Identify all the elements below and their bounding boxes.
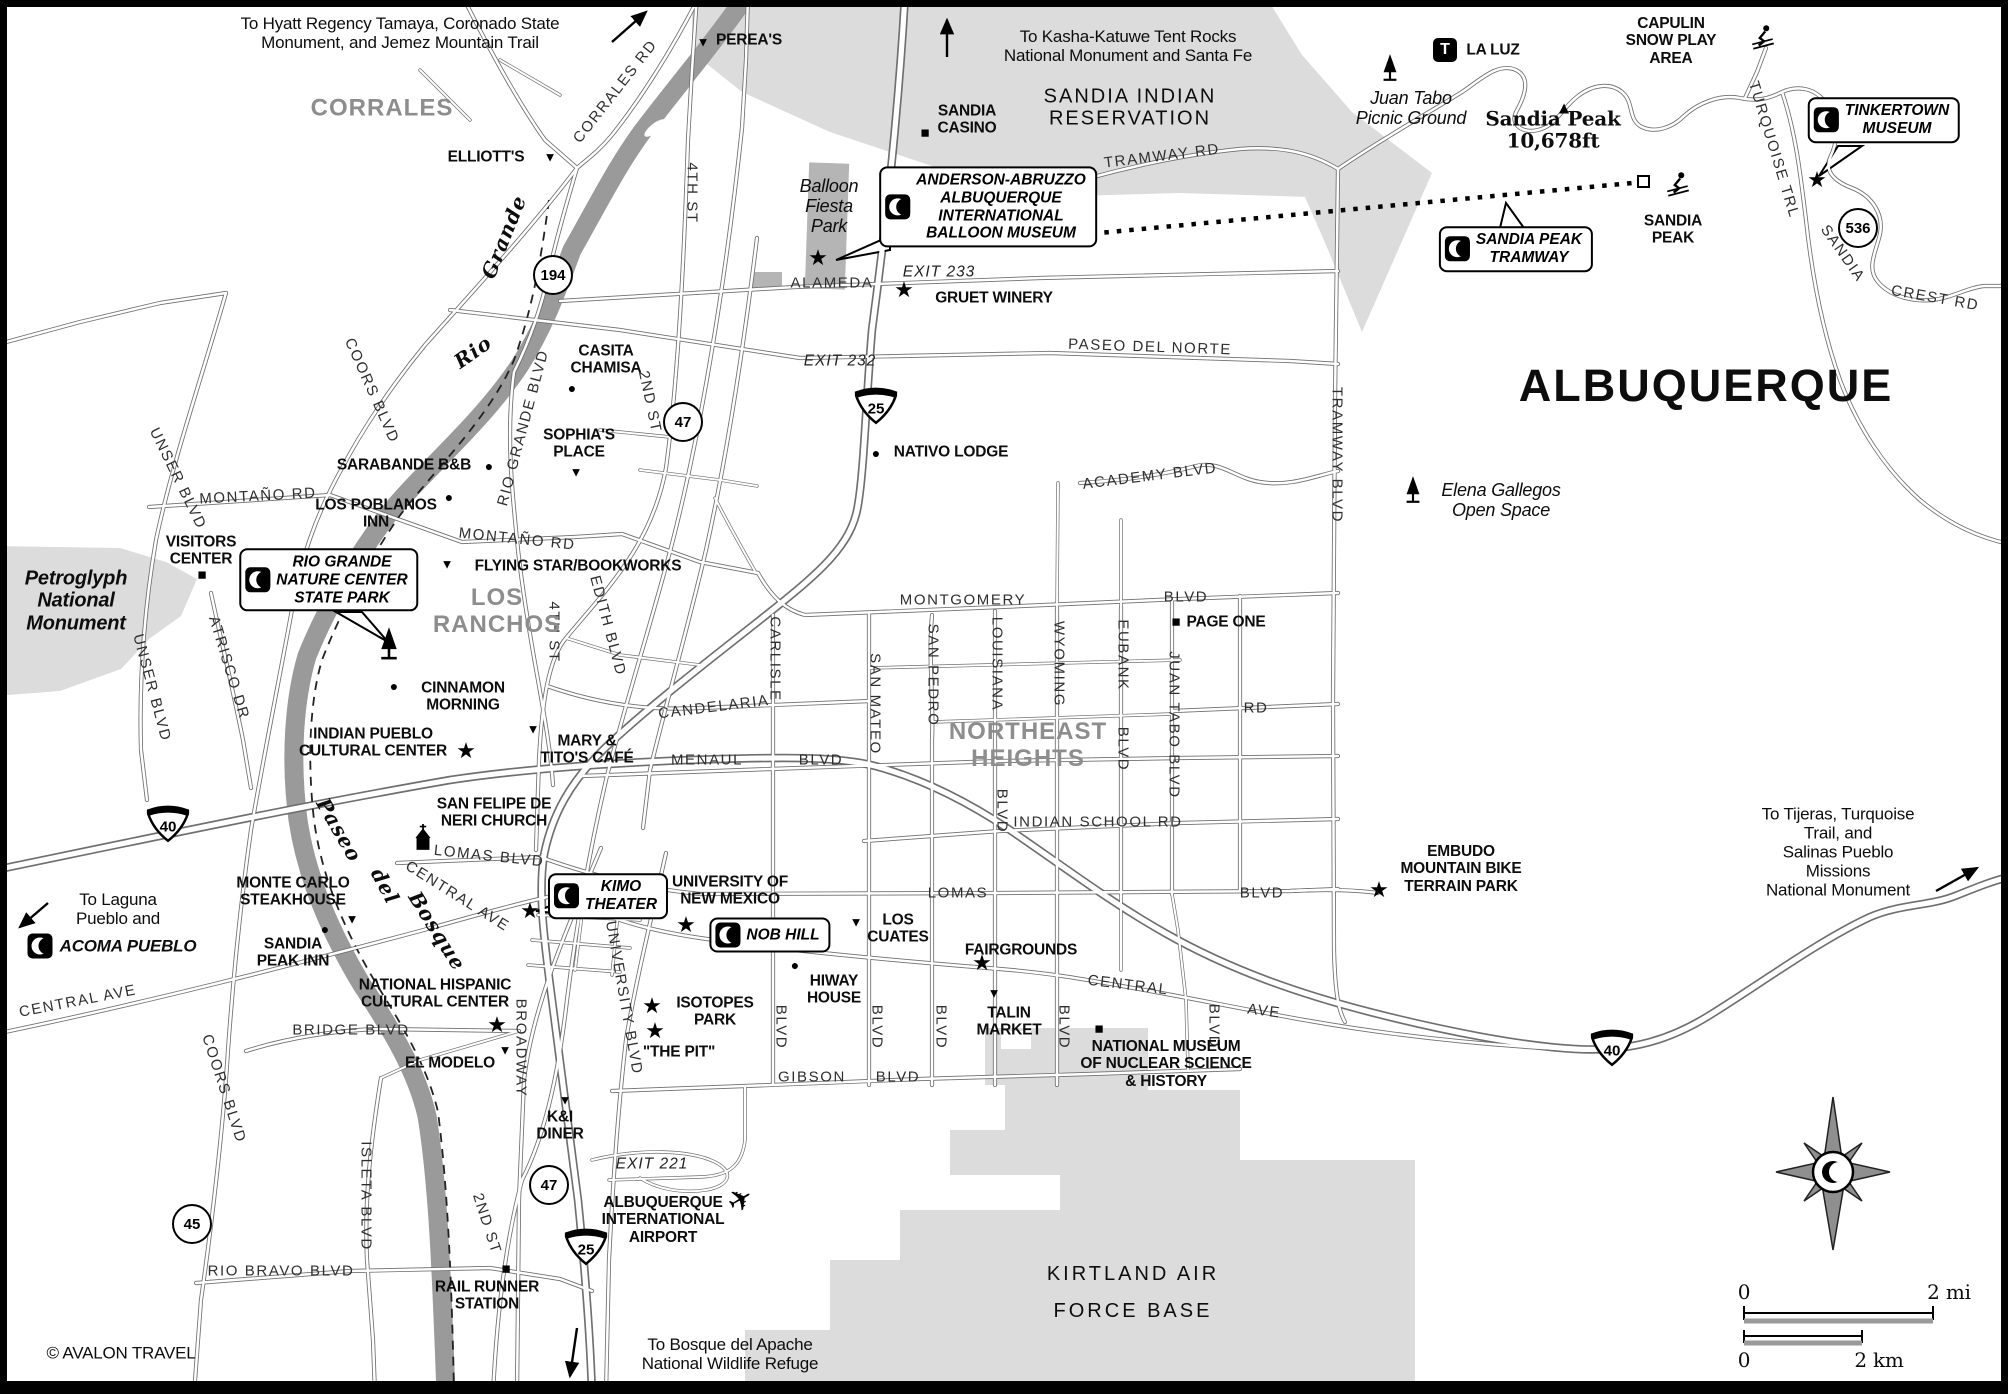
road-wyoming-blvd-s: BLVD xyxy=(1055,1005,1072,1049)
road-louisiana: LOUISIANA xyxy=(988,617,1005,711)
sight-marker-visitors-center: ■ xyxy=(197,568,206,583)
poi-ki-diner: K&I DINER xyxy=(536,1109,583,1144)
star-marker-tinkertown: ★ xyxy=(1807,169,1827,191)
lodging-marker-cinnamon: ● xyxy=(390,679,398,693)
albuquerque-map: To Hyatt Regency Tamaya, Coronado State … xyxy=(0,0,2008,1394)
moon-icon xyxy=(245,568,270,593)
scale-bars xyxy=(1744,1306,1933,1343)
callout-kimo-theater: KIMO THEATER xyxy=(548,873,668,919)
callout-text: ANDERSON-ABRUZZO ALBUQUERQUE INTERNATION… xyxy=(916,171,1086,242)
restaurant-marker-talin: ▼ xyxy=(988,987,1001,1000)
poi-casita-chamisa: CASITA CHAMISA xyxy=(571,343,642,378)
road-carlisle-blvd-s: BLVD xyxy=(772,1005,789,1049)
road-gibson-blvd: BLVD xyxy=(876,1070,920,1087)
road-tramway-blvd: TRAMWAY BLVD xyxy=(1328,387,1345,523)
city-northeast-heights: NORTHEAST HEIGHTS xyxy=(949,719,1107,773)
road-san-pedro-blvd-s: BLVD xyxy=(932,1005,949,1049)
city-los-ranchos: LOS RANCHOS xyxy=(433,585,561,639)
star-marker-unm: ★ xyxy=(676,914,696,936)
area-petroglyph: Petroglyph National Monument xyxy=(25,567,127,634)
poi-los-poblanos: LOS POBLANOS INN xyxy=(315,497,437,532)
poi-talin-market: TALIN MARKET xyxy=(976,1005,1041,1040)
callout-text: TINKERTOWN MUSEUM xyxy=(1845,102,1949,138)
svg-text:40: 40 xyxy=(1604,1042,1621,1059)
interstate-shield-40-east: 40 xyxy=(1589,1024,1635,1068)
road-gibson: GIBSON xyxy=(778,1070,846,1087)
exit-232: EXIT 232 xyxy=(804,352,877,369)
star-marker-ipcc: ★ xyxy=(456,740,476,762)
road-carlisle: CARLISLE xyxy=(766,616,783,701)
poi-la-luz: LA LUZ xyxy=(1466,41,1519,58)
picnic-tree-icon-juan-tabo xyxy=(1379,53,1401,83)
moon-icon xyxy=(554,884,579,909)
trailhead-icon-la-luz: T xyxy=(1433,38,1457,62)
road-menaul-blvd: BLVD xyxy=(799,753,843,770)
area-elena-gallegos: Elena Gallegos Open Space xyxy=(1441,480,1560,520)
poi-cinnamon-morning: CINNAMON MORNING xyxy=(421,680,505,715)
road-san-mateo: SAN MATEO xyxy=(866,653,883,755)
road-broadway: BROADWAY xyxy=(512,999,529,1098)
road-eubank: EUBANK xyxy=(1114,619,1131,690)
restaurant-marker-sophias: ▼ xyxy=(570,466,583,479)
poi-sarabande: SARABANDE B&B xyxy=(337,456,471,473)
poi-el-modelo: EL MODELO xyxy=(405,1054,495,1071)
poi-nativo-lodge: NATIVO LODGE xyxy=(894,443,1008,460)
scale-km-zero: 0 xyxy=(1738,1349,1751,1371)
poi-unm: UNIVERSITY OF NEW MEXICO xyxy=(672,874,788,909)
callout-text: RIO GRANDE NATURE CENTER STATE PARK xyxy=(276,553,407,606)
callout-sandia-tramway: SANDIA PEAK TRAMWAY xyxy=(1439,226,1593,272)
restaurant-marker-monte-carlo: ▼ xyxy=(346,913,359,926)
poi-visitors-center: VISITORS CENTER xyxy=(166,534,236,569)
road-indian-school: INDIAN SCHOOL RD xyxy=(1013,815,1182,832)
sight-marker-sandia-casino: ■ xyxy=(920,126,929,141)
star-marker-isotopes: ★ xyxy=(642,995,662,1017)
map-credit: © AVALON TRAVEL xyxy=(46,1343,195,1362)
moon-icon xyxy=(715,923,740,948)
star-marker-the-pit: ★ xyxy=(645,1020,665,1042)
peak-sandia-elev: Sandia Peak 10,678ft xyxy=(1485,108,1620,153)
callout-tinkertown: TINKERTOWN MUSEUM xyxy=(1808,97,1960,143)
poi-sandia-casino: SANDIA CASINO xyxy=(937,103,996,138)
moon-icon xyxy=(1814,108,1839,133)
lodging-marker-hiway-house: ● xyxy=(791,958,799,972)
restaurant-marker-los-cuates: ▼ xyxy=(850,916,863,929)
picnic-tree-icon-elena xyxy=(1402,475,1424,505)
lodging-marker-sandia-peak-inn: ● xyxy=(321,922,329,936)
exit-233: EXIT 233 xyxy=(903,263,976,280)
poi-rail-runner: RAIL RUNNER STATION xyxy=(435,1279,539,1314)
star-marker-kimo: ★ xyxy=(520,900,540,922)
route-shield-536: 536 xyxy=(1838,208,1878,248)
callout-text: KIMO THEATER xyxy=(585,878,657,914)
restaurant-marker-mary-titos: ▼ xyxy=(527,723,540,736)
route-shield-47-s: 47 xyxy=(529,1165,569,1205)
star-marker-embudo: ★ xyxy=(1369,879,1389,901)
poi-airport: ALBUQUERQUE INTERNATIONAL AIRPORT xyxy=(602,1194,725,1246)
note-tijeras: To Tijeras, Turquoise Trail, and Salinas… xyxy=(1753,804,1923,899)
note-hyatt: To Hyatt Regency Tamaya, Coronado State … xyxy=(241,14,560,52)
road-candelaria-rd-e: RD xyxy=(1244,701,1269,718)
lodging-marker-los-poblanos: ● xyxy=(445,490,453,504)
road-isleta: ISLETA BLVD xyxy=(357,1141,374,1251)
road-4th-st-n: 4TH ST xyxy=(683,162,700,223)
poi-isotopes-park: ISOTOPES PARK xyxy=(676,995,753,1030)
note-laguna: To Laguna Pueblo and xyxy=(76,890,160,928)
poi-hiway-house: HIWAY HOUSE xyxy=(807,973,861,1008)
area-sandia-reservation: SANDIA INDIAN RESERVATION xyxy=(1044,86,1217,131)
road-bridge-blvd: BRIDGE BLVD xyxy=(292,1023,409,1040)
compass-rose xyxy=(1775,1097,1891,1250)
road-san-pedro: SAN PEDRO xyxy=(924,624,941,727)
poi-flying-star: FLYING STAR/BOOKWORKS xyxy=(475,557,682,574)
map-title: ALBUQUERQUE xyxy=(1519,361,1894,411)
route-shield-47-n: 47 xyxy=(663,402,703,442)
svg-text:25: 25 xyxy=(578,1241,595,1258)
restaurant-marker-el-modelo: ▼ xyxy=(499,1044,512,1057)
sight-marker-page-one: ■ xyxy=(1171,615,1180,630)
route-shield-45: 45 xyxy=(172,1204,212,1244)
svg-text:25: 25 xyxy=(868,400,885,417)
scale-mi-max: 2 mi xyxy=(1927,1281,1971,1303)
poi-mary-titos: MARY & TITO'S CAFÉ xyxy=(540,733,633,768)
sight-marker-rail-runner: ■ xyxy=(501,1262,510,1277)
poi-sandia-peak: SANDIA PEAK xyxy=(1644,213,1702,248)
area-juan-tabo: Juan Tabo Picnic Ground xyxy=(1356,88,1466,128)
road-louisiana-blvd-s: BLVD xyxy=(993,789,1010,833)
poi-monte-carlo: MONTE CARLO STEAKHOUSE xyxy=(236,875,349,910)
note-kasha: To Kasha-Katuwe Tent Rocks National Monu… xyxy=(1004,27,1252,65)
poi-the-pit: "THE PIT" xyxy=(643,1043,715,1060)
road-eubank-blvd: BLVD xyxy=(1114,727,1131,771)
road-alameda: ALAMEDA xyxy=(791,276,874,293)
road-montgomery: MONTGOMERY xyxy=(900,593,1027,610)
note-bosque: To Bosque del Apache National Wildlife R… xyxy=(642,1335,819,1373)
moon-icon-acoma xyxy=(28,934,53,959)
interstate-shield-40-west: 40 xyxy=(145,800,191,844)
callout-text: NOB HILL xyxy=(746,926,819,944)
road-montgomery-blvd: BLVD xyxy=(1164,590,1208,607)
skier-icon-capulin xyxy=(1749,24,1777,52)
poi-page-one: PAGE ONE xyxy=(1186,613,1265,630)
callout-nob-hill: NOB HILL xyxy=(709,918,830,953)
star-marker-balloon-museum: ★ xyxy=(808,247,828,269)
poi-sandia-peak-inn: SANDIA PEAK INN xyxy=(257,936,329,971)
poi-nuclear-museum: NATIONAL MUSEUM OF NUCLEAR SCIENCE & HIS… xyxy=(1080,1038,1251,1090)
road-juan-tabo-blvd: JUAN TABO BLVD xyxy=(1165,651,1182,798)
skier-icon-sandia-peak xyxy=(1664,171,1692,199)
restaurant-marker-flying-star: ▼ xyxy=(441,558,454,571)
church-icon-san-felipe xyxy=(412,824,434,852)
restaurant-marker-ki-diner: ▼ xyxy=(559,1094,572,1107)
star-marker-gruet: ★ xyxy=(894,279,914,301)
sandia-reservation-tail xyxy=(1305,173,1432,332)
lodging-marker-nativo: ● xyxy=(872,446,880,460)
road-rio-bravo: RIO BRAVO BLVD xyxy=(208,1264,355,1281)
road-lomas-blvd-e: BLVD xyxy=(1240,886,1284,903)
poi-los-cuates: LOS CUATES xyxy=(867,912,928,947)
poi-capulin: CAPULIN SNOW PLAY AREA xyxy=(1626,15,1717,67)
callout-rio-grande-nature-center: RIO GRANDE NATURE CENTER STATE PARK xyxy=(239,548,418,611)
scale-km-max: 2 km xyxy=(1854,1349,1903,1371)
sight-marker-nuclear-museum: ■ xyxy=(1094,1022,1103,1037)
lodging-marker-casita: ● xyxy=(568,381,576,395)
poi-nhcc: NATIONAL HISPANIC CULTURAL CENTER xyxy=(359,977,511,1012)
route-shield-194: 194 xyxy=(533,255,573,295)
alameda-patch xyxy=(752,272,782,288)
lodging-marker-sarabande: ● xyxy=(485,459,493,473)
restaurant-marker-pereas: ▼ xyxy=(697,36,710,49)
moon-icon xyxy=(885,195,910,220)
area-kirtland: KIRTLAND AIR FORCE BASE xyxy=(1047,1256,1219,1330)
poi-elliotts: ELLIOTT'S xyxy=(448,148,525,165)
city-corrales: CORRALES xyxy=(311,96,454,123)
poi-pereas: PEREA'S xyxy=(716,31,782,48)
callout-text: SANDIA PEAK TRAMWAY xyxy=(1476,231,1582,267)
poi-san-felipe: SAN FELIPE DE NERI CHURCH xyxy=(437,796,552,831)
exit-221: EXIT 221 xyxy=(616,1155,689,1172)
interstate-shield-25-north: 25 xyxy=(853,382,899,426)
moon-icon xyxy=(1445,237,1470,262)
poi-gruet-winery: GRUET WINERY xyxy=(935,289,1053,306)
poi-sophias-place: SOPHIA'S PLACE xyxy=(543,427,615,462)
road-menaul: MENAUL xyxy=(671,753,743,770)
star-marker-nhcc: ★ xyxy=(487,1014,507,1036)
road-lomas-e: LOMAS xyxy=(928,886,989,903)
restaurant-marker-elliotts: ▼ xyxy=(544,151,557,164)
poi-fairgrounds: FAIRGROUNDS xyxy=(965,941,1077,958)
poi-acoma-pueblo: ACOMA PUEBLO xyxy=(60,936,197,955)
area-balloon-fiesta: Balloon Fiesta Park xyxy=(800,176,859,236)
poi-indian-pueblo-cc: INDIAN PUEBLO CULTURAL CENTER xyxy=(299,726,447,761)
svg-text:40: 40 xyxy=(160,818,177,835)
road-wyoming: WYOMING xyxy=(1050,621,1067,707)
road-san-mateo-blvd-s: BLVD xyxy=(868,1005,885,1049)
callout-balloon-museum: ANDERSON-ABRUZZO ALBUQUERQUE INTERNATION… xyxy=(879,166,1097,247)
scale-mi-zero: 0 xyxy=(1738,1281,1751,1303)
picnic-tree-icon-rgnc xyxy=(376,626,402,662)
poi-embudo: EMBUDO MOUNTAIN BIKE TERRAIN PARK xyxy=(1400,843,1521,895)
